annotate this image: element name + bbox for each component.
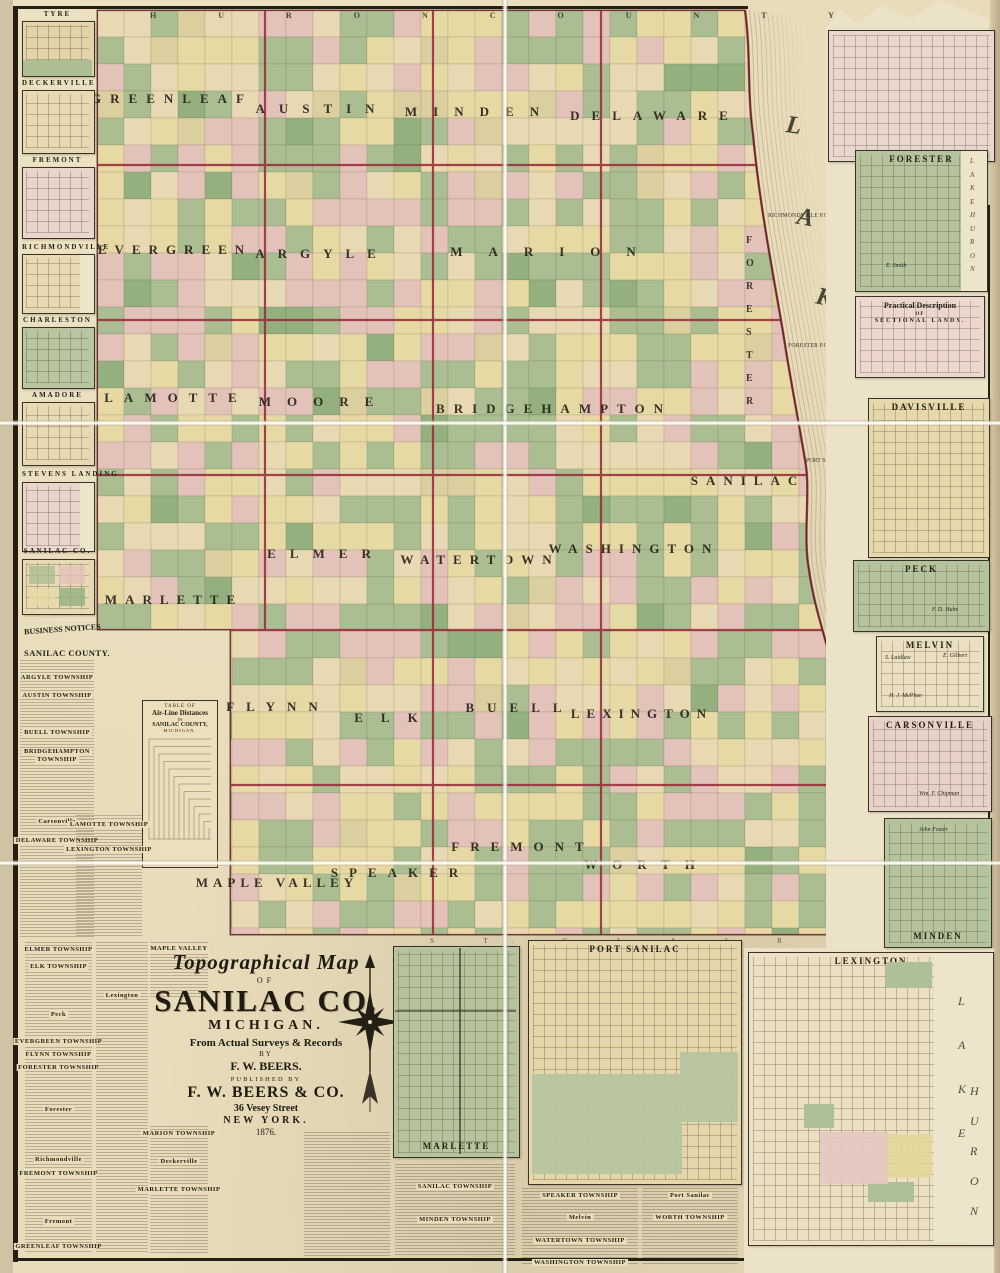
yellow-district <box>888 1134 932 1178</box>
inset-lake-letter: E <box>958 1126 965 1141</box>
sidebar-inset-streets <box>26 171 89 233</box>
inset-color-patch <box>59 588 85 606</box>
town-inset <box>828 30 995 162</box>
sidebar-inset-plan <box>22 254 95 314</box>
town-inset: Wm. F. ChipmanCARSONVILLE <box>868 716 992 812</box>
sidebar-inset-plan <box>22 90 95 154</box>
notice-header: SANILAC TOWNSHIP <box>416 1183 494 1190</box>
inset-plan: John FosterMINDEN <box>884 818 992 948</box>
notice-header: SPEAKER TOWNSHIP <box>540 1192 620 1199</box>
town-inset: LAKEHURONE. SmithFORESTER <box>855 150 988 292</box>
notice-header: WASHINGTON TOWNSHIP <box>532 1259 628 1266</box>
sidebar-inset-plan <box>22 559 95 615</box>
inset-lake-letter: H <box>970 1084 979 1099</box>
notice-header: Richmondville <box>33 1156 84 1163</box>
town-inset: MARLETTE <box>393 946 520 1158</box>
inset-streets <box>889 823 987 943</box>
inset-title: MINDEN <box>885 931 991 941</box>
green-district <box>532 1074 682 1174</box>
notice-header: Lexington <box>104 992 141 999</box>
green-district <box>804 1104 834 1128</box>
owner-name-label: H. J. McPhee <box>889 693 922 699</box>
frame-left <box>13 6 18 1262</box>
inset-title: MARLETTE <box>394 1141 519 1151</box>
inset-lake-letter: K <box>958 1082 966 1097</box>
distance-table: TABLE OF Air-Line Distances IN SANILAC C… <box>142 700 218 868</box>
notice-header: LAMOTTE TOWNSHIP <box>68 821 150 828</box>
inset-water <box>23 60 92 76</box>
notice-header: ELK TOWNSHIP <box>28 963 89 970</box>
green-district <box>680 1052 738 1122</box>
green-district <box>868 1182 914 1202</box>
main-street <box>459 948 461 1154</box>
owner-name-label: S. Laidlaw <box>885 655 911 661</box>
notice-header: Fremont <box>43 1218 75 1225</box>
sidebar-inset-plan <box>22 167 95 239</box>
town-inset: John FosterMINDEN <box>884 818 992 948</box>
inset-plan: LAKEHURONE. SmithFORESTER <box>855 150 988 292</box>
notice-header: ELMER TOWNSHIP <box>23 946 95 953</box>
notice-text-noise <box>642 1188 738 1266</box>
sidebar-inset-plan <box>22 327 95 389</box>
inset-plan: Practical DescriptionOFSECTIONAL LANDS. <box>855 296 985 378</box>
owner-name-label: E. Gilbert <box>943 653 967 659</box>
notice-header: Deckerville <box>159 1158 200 1165</box>
cross-street <box>395 1010 516 1012</box>
inset-streets <box>833 35 990 157</box>
sidebar-inset-streets <box>26 94 89 148</box>
notice-header: Peck <box>49 1011 68 1018</box>
notice-text-noise <box>96 942 148 1253</box>
business-notices-subheader: SANILAC COUNTY. <box>24 648 92 658</box>
inset-plan: F. D. HubePECK <box>853 560 990 632</box>
notice-header: Port Sanilac <box>668 1192 712 1199</box>
inset-lake-letter: K <box>970 184 975 192</box>
fold-crease-horizontal-2 <box>0 860 1000 866</box>
left-margin <box>0 0 13 1273</box>
inset-title: PORT SANILAC <box>529 944 741 954</box>
notice-header: AUSTIN TOWNSHIP <box>20 692 93 699</box>
sidebar-inset-title: STEVENS LANDING <box>22 470 93 478</box>
notice-header: Melvin <box>567 1214 594 1221</box>
inset-title: FORESTER <box>856 154 987 164</box>
green-district <box>886 962 932 988</box>
fold-crease-horizontal-1 <box>0 420 1000 426</box>
inset-streets <box>858 565 985 627</box>
notice-header: FREMONT TOWNSHIP <box>17 1170 99 1177</box>
inset-color-patch <box>59 566 85 584</box>
inset-lake-letter: A <box>970 171 974 179</box>
owner-name-label: E. Smith <box>886 263 906 269</box>
inset-title: DAVISVILLE <box>869 402 989 412</box>
inset-shore <box>80 255 94 313</box>
sidebar-inset-title: FREMONT <box>22 156 93 164</box>
distance-table-grid <box>145 735 215 845</box>
inset-lake-letter: N <box>970 1204 978 1219</box>
notice-header: FORESTER TOWNSHIP <box>16 1064 101 1071</box>
notice-header: FLYNN TOWNSHIP <box>24 1051 94 1058</box>
town-inset: F. D. HubePECK <box>853 560 990 632</box>
sidebar-inset-title: CHARLESTON <box>22 316 93 324</box>
inset-title-of: OF <box>856 312 984 317</box>
inset-title: MELVIN <box>877 640 983 650</box>
inset-plan: S. LaidlawE. GilbertH. J. McPheeMELVIN <box>876 636 984 712</box>
map-page: GREENLEAFAUSTINMINDENDELAWAREEVERGREENAR… <box>0 0 1000 1273</box>
notice-text-noise <box>522 1188 638 1266</box>
inset-lake: LAKEHURON <box>961 151 987 291</box>
town-inset: Practical DescriptionOFSECTIONAL LANDS. <box>855 296 985 378</box>
notice-header: EVERGREEN TOWNSHIP <box>13 1038 104 1045</box>
town-inset: LAKEHURONLEXINGTONLAKEHURON <box>748 952 994 1246</box>
notice-header: MARION TOWNSHIP <box>141 1130 217 1137</box>
inset-color-patch <box>29 566 55 584</box>
inset-lake-letter: H <box>970 211 975 219</box>
inset-plan: Wm. F. ChipmanCARSONVILLE <box>868 716 992 812</box>
inset-title: CARSONVILLE <box>869 720 991 730</box>
inset-lake-letter: U <box>970 225 975 233</box>
inset-shore <box>80 483 94 551</box>
notice-text-noise <box>76 815 142 937</box>
distance-table-title: Air-Line Distances <box>143 709 217 717</box>
owner-name-label: Wm. F. Chipman <box>919 791 959 797</box>
inset-lake-big: LAKEHURON <box>934 954 992 1242</box>
inset-lake-letter: L <box>958 994 965 1009</box>
sidebar-inset-streets <box>26 331 89 383</box>
north-neighbor-label: H U R O N C O U N T Y <box>150 11 720 20</box>
owner-name-label: F. D. Hube <box>932 607 958 613</box>
inset-title: PECK <box>854 564 989 574</box>
inset-color-patch <box>29 588 55 606</box>
sidebar-inset-streets <box>26 406 89 460</box>
sidebar-inset-title: RICHMONDVILLE <box>22 243 93 251</box>
notice-header: TOWNSHIP <box>35 756 79 763</box>
inset-lake-letter: U <box>970 1114 979 1129</box>
sidebar-inset-title: AMADORE <box>22 391 93 399</box>
notice-header: WORTH TOWNSHIP <box>653 1214 727 1221</box>
sidebar-inset-title: TYRE <box>22 10 93 18</box>
inset-plan <box>828 30 995 162</box>
notice-header: WATERTOWN TOWNSHIP <box>533 1237 627 1244</box>
inset-lake-letter: R <box>970 238 974 246</box>
sidebar-inset-title: SANILAC CO. <box>22 547 93 555</box>
distance-table-state: MICHIGAN. <box>143 728 217 733</box>
notice-header: MINDEN TOWNSHIP <box>417 1216 493 1223</box>
inset-title: Practical Description <box>856 301 984 310</box>
notice-text-noise <box>25 942 92 1253</box>
inset-plan: MARLETTE <box>393 946 520 1158</box>
inset-lake-letter: N <box>970 265 975 273</box>
inset-lake-letter: R <box>970 1144 977 1159</box>
town-inset: S. LaidlawE. GilbertH. J. McPheeMELVIN <box>876 636 984 712</box>
town-inset: PORT SANILAC <box>528 940 742 1185</box>
inset-streets <box>398 951 515 1153</box>
notice-header: BUELL TOWNSHIP <box>22 729 92 736</box>
notice-header: Forester <box>43 1106 74 1113</box>
sidebar-inset-plan <box>22 482 95 552</box>
notice-header: BRIDGEHAMPTON <box>22 748 92 755</box>
sidebar-inset-plan <box>22 402 95 466</box>
inset-title-sub: SECTIONAL LANDS. <box>856 318 984 324</box>
pink-district <box>820 1132 888 1184</box>
sidebar-inset-plan <box>22 21 95 77</box>
owner-name-label: John Foster <box>919 827 948 833</box>
frame-top <box>13 6 748 9</box>
notice-header: ARGYLE TOWNSHIP <box>19 674 95 681</box>
notice-header: LEXINGTON TOWNSHIP <box>64 846 154 853</box>
sidebar-inset-title: DECKERVILLE <box>22 79 93 87</box>
inset-lake-letter: O <box>970 252 975 260</box>
notice-header: MARLETTE TOWNSHIP <box>136 1186 223 1193</box>
notice-text-noise <box>304 1132 390 1256</box>
notice-header: MAPLE VALLEY <box>148 945 209 952</box>
notice-text-noise <box>395 1164 515 1256</box>
fold-crease-vertical <box>502 0 508 1273</box>
inset-lake-letter: O <box>970 1174 979 1189</box>
inset-lake-letter: E <box>970 198 974 206</box>
notice-header: GREENLEAF TOWNSHIP <box>13 1243 103 1250</box>
inset-lake-letter: A <box>958 1038 965 1053</box>
